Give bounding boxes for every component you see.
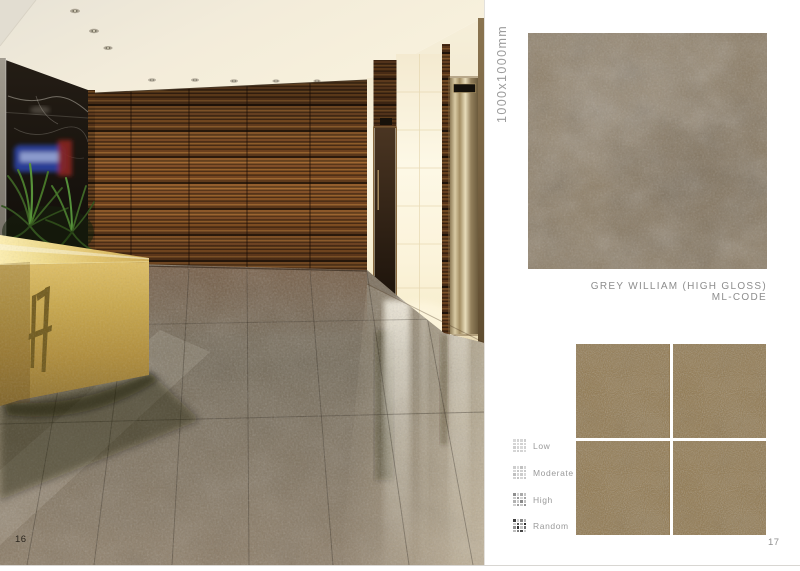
legend-label: Random — [533, 521, 569, 531]
lobby-scene — [0, 0, 485, 565]
legend-item-moderate: Moderate — [513, 466, 574, 479]
legend-item-high: High — [513, 493, 553, 506]
left-page-number: 16 — [15, 534, 27, 545]
shade-variation-icon-high — [513, 493, 526, 506]
legend-item-random: Random — [513, 519, 569, 532]
layout-tile — [576, 344, 670, 438]
layout-tile — [673, 441, 767, 535]
shade-variation-icon-low — [513, 439, 526, 452]
elevator-sign-plaque — [454, 84, 476, 93]
layout-tile — [673, 344, 767, 438]
legend-label: High — [533, 495, 553, 505]
product-code: ML-CODE — [591, 292, 767, 303]
legend-item-low: Low — [513, 439, 550, 452]
grey-william-swatch — [528, 33, 767, 269]
right-page-number: 17 — [768, 537, 780, 548]
swatch-texture — [528, 33, 767, 269]
product-caption: GREY WILLIAM (HIGH GLOSS) ML-CODE — [591, 281, 767, 303]
backlit-onyx-panel — [396, 54, 442, 330]
tile-size-label: 1000x1000mm — [495, 28, 509, 123]
wood-panel-wall — [95, 80, 367, 272]
blue-signage-reflection — [14, 140, 72, 176]
door-sign-plaque — [380, 118, 392, 125]
catalog-spread: 1000x1000mm GREY WILLIAM (HIGH GLOSS) ML… — [0, 0, 800, 571]
tile-layout-grid — [576, 344, 766, 535]
layout-tile — [576, 441, 670, 535]
page-bottom-edge — [0, 565, 800, 566]
legend-label: Low — [533, 441, 550, 451]
shade-variation-icon-moderate — [513, 466, 526, 479]
interior-render-photo — [0, 0, 485, 565]
legend-label: Moderate — [533, 468, 574, 478]
shade-variation-icon-random — [513, 519, 526, 532]
page-gutter-line — [484, 0, 485, 565]
product-name: GREY WILLIAM (HIGH GLOSS) — [591, 281, 767, 292]
bronze-elevator-door — [450, 78, 478, 334]
